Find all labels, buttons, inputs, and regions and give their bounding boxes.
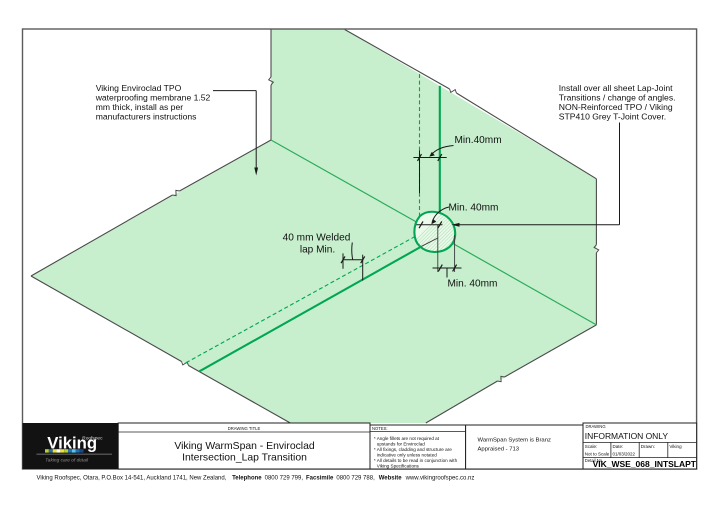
svg-text:indicative only unless notated: indicative only unless notated [377,452,437,457]
svg-text:* All details to be read in co: * All details to be read in conjunction … [374,458,458,463]
svg-text:Drawn:: Drawn: [641,444,655,449]
svg-text:INFORMATION ONLY: INFORMATION ONLY [585,431,669,441]
svg-text:Min. 40mm: Min. 40mm [449,203,499,214]
svg-text:upstands for Enviroclad: upstands for Enviroclad [377,441,425,446]
svg-text:Not to Scale: Not to Scale [585,451,610,456]
svg-text:Viking: Viking [669,444,682,449]
svg-text:Scale:: Scale: [585,444,598,449]
svg-text:manufacturers instructions: manufacturers instructions [96,111,197,121]
svg-text:Taking care of detail: Taking care of detail [45,457,89,463]
svg-text:lap Min.: lap Min. [300,244,335,255]
svg-text:Min.40mm: Min.40mm [455,135,502,146]
svg-text:Viking Roofspec, Otara, P.O.Bo: Viking Roofspec, Otara, P.O.Box 14-541, … [37,476,475,482]
svg-text:VIK_WSE_068_INTSLAPT: VIK_WSE_068_INTSLAPT [593,459,697,469]
svg-text:Viking Enviroclad TPO: Viking Enviroclad TPO [96,83,182,93]
svg-text:Intersection_Lap Transition: Intersection_Lap Transition [182,453,307,464]
svg-text:* Angle fillets are not requir: * Angle fillets are not required at [374,436,440,441]
svg-text:DRAWING TITLE: DRAWING TITLE [228,426,261,431]
svg-text:Appraised - 713: Appraised - 713 [478,447,520,453]
svg-text:Viking Specifications: Viking Specifications [377,463,420,468]
svg-text:STP410 Grey T-Joint Cover.: STP410 Grey T-Joint Cover. [559,111,666,121]
svg-text:WarmSpan System is Branz: WarmSpan System is Branz [478,438,551,444]
svg-text:DRAWING: DRAWING [586,424,606,429]
svg-text:* All fixings, cladding and st: * All fixings, cladding and structure ar… [374,447,452,452]
svg-text:01/03/2022: 01/03/2022 [613,451,636,456]
svg-text:NOTES:: NOTES: [372,426,388,431]
svg-text:Date:: Date: [613,444,624,449]
svg-text:40 mm Welded: 40 mm Welded [283,233,351,244]
svg-text:Min. 40mm: Min. 40mm [448,278,498,289]
svg-text:Viking WarmSpan - Enviroclad: Viking WarmSpan - Enviroclad [174,441,315,452]
svg-text:Install over all sheet Lap-Joi: Install over all sheet Lap-Joint [559,83,673,93]
